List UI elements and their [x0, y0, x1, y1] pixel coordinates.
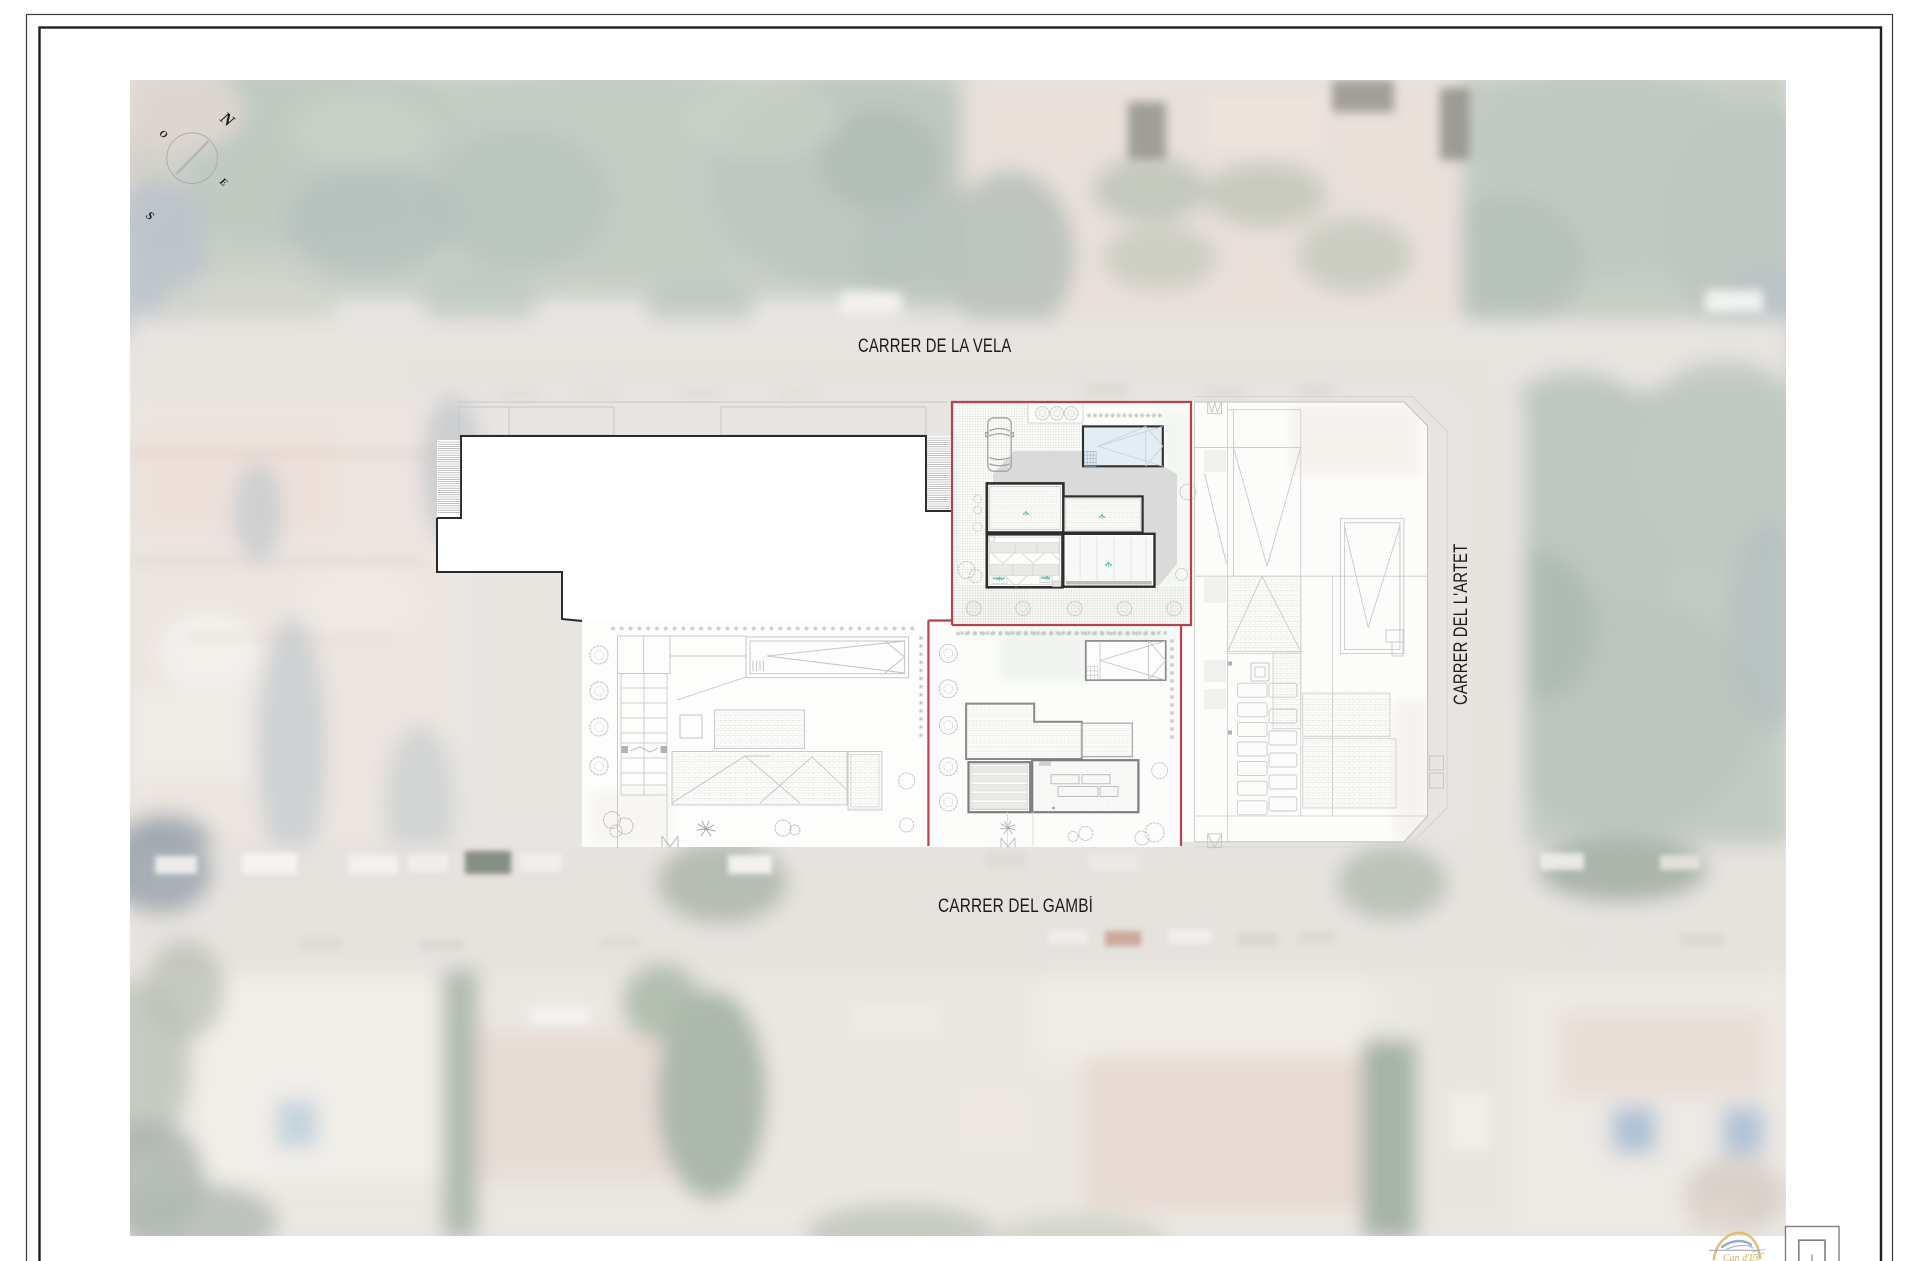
svg-text:Can d'Es: Can d'Es	[1723, 1253, 1759, 1261]
